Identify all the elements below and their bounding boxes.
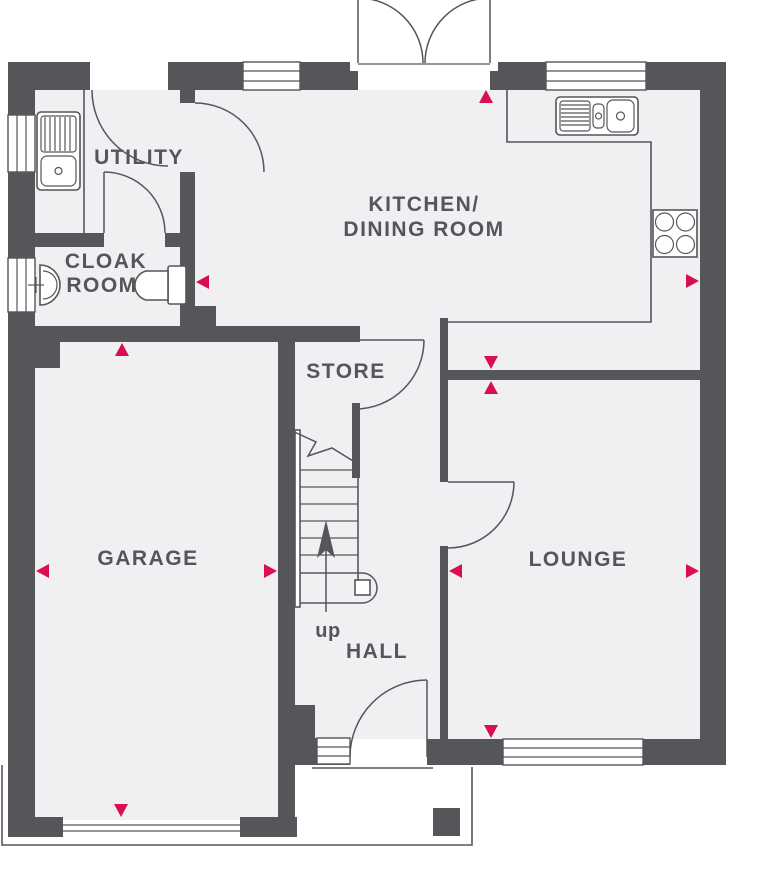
room-label-lounge: LOUNGE <box>529 548 628 571</box>
window-kitchen-top <box>546 62 646 90</box>
stair-stringer <box>295 430 300 607</box>
garage-door <box>63 820 240 836</box>
window-lounge-bottom <box>503 739 643 765</box>
wall-left <box>8 62 35 837</box>
wall-garage-right <box>278 342 295 837</box>
garage-floor-extension <box>35 739 278 824</box>
wall-utility-cloak-divider-right <box>165 233 195 247</box>
wall-cloak-corner <box>195 306 216 326</box>
utility-sink-icon <box>37 112 80 190</box>
french-door-jamb-left <box>350 62 358 71</box>
wall-right <box>700 62 726 765</box>
room-label-hall: HALL <box>346 640 408 663</box>
utility-door-opening <box>90 62 168 90</box>
window-utility-left <box>8 115 35 172</box>
wall-utility-cloak-divider-left <box>35 233 104 247</box>
wall-garage-top <box>8 326 360 342</box>
wall-hall-lounge-upper <box>440 318 448 482</box>
room-label-cloak-line2: ROOM <box>66 274 137 297</box>
room-label-utility: UTILITY <box>94 146 184 169</box>
french-door-jamb-right <box>490 62 498 71</box>
wall-utility-right-upper <box>180 90 195 103</box>
stair-newel-post <box>355 580 370 595</box>
room-label-garage: GARAGE <box>97 547 198 570</box>
french-door-right-arc <box>425 0 490 63</box>
floor-plan-canvas: UTILITY CLOAK ROOM KITCHEN/ DINING ROOM … <box>0 0 767 870</box>
wall-garage-bottom-left <box>8 817 63 837</box>
room-label-kitchen-line2: DINING ROOM <box>343 218 504 241</box>
floor-plan: UTILITY CLOAK ROOM KITCHEN/ DINING ROOM … <box>0 0 767 870</box>
wall-garage-corner-block <box>35 342 60 368</box>
room-label-cloak-line1: CLOAK <box>65 250 147 273</box>
room-label-store: STORE <box>306 360 385 383</box>
hob-icon <box>653 210 697 257</box>
porch-pillar <box>433 808 460 836</box>
window-hall-sidelight <box>317 738 350 764</box>
room-label-kitchen-line1: KITCHEN/ <box>368 193 479 216</box>
kitchen-sink-icon <box>556 97 638 135</box>
wall-kitchen-lounge-divider <box>448 370 700 380</box>
window-utility-top <box>243 62 300 90</box>
stairs-up-label: up <box>315 620 340 642</box>
french-door-opening <box>358 62 490 90</box>
wall-store-right <box>352 403 360 478</box>
wall-hall-lounge-lower <box>440 546 448 739</box>
french-door-left-arc <box>358 0 423 63</box>
